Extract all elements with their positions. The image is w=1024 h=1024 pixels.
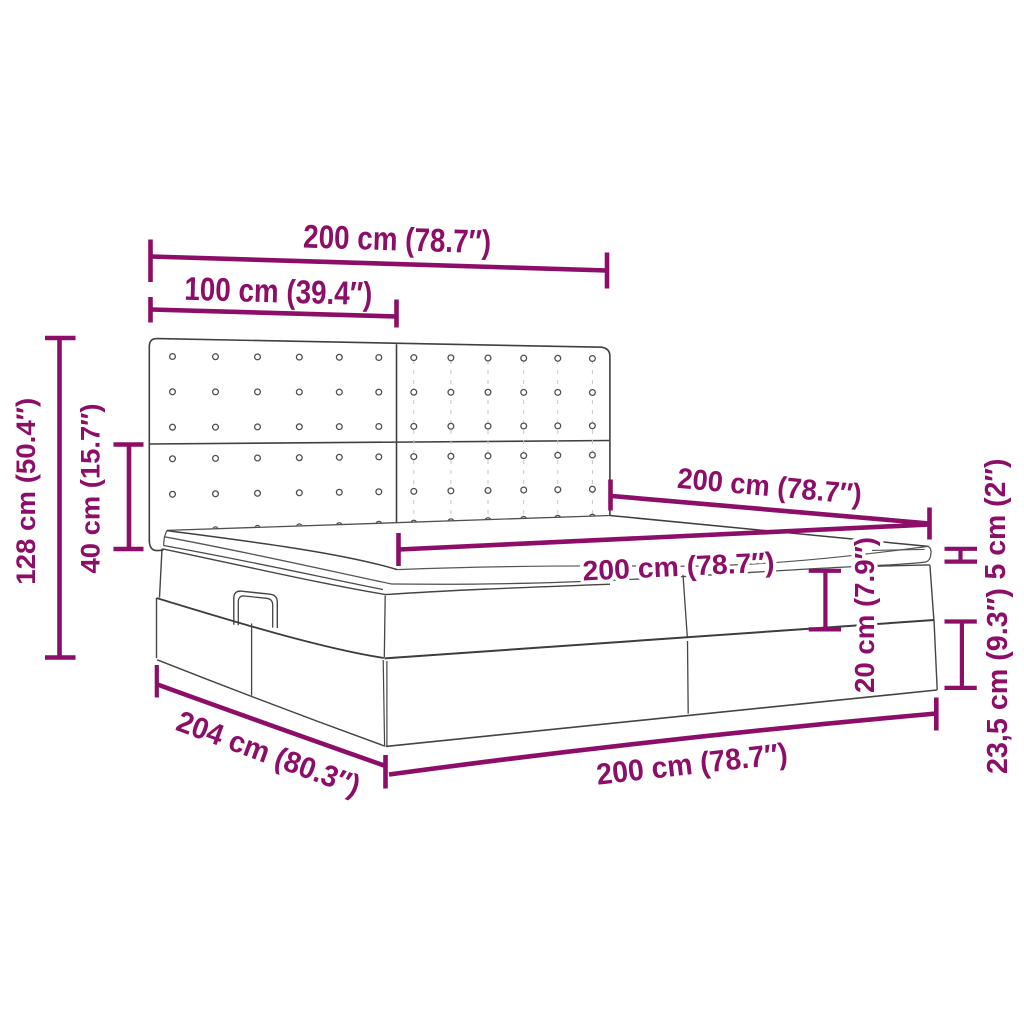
svg-text:200 cm (78.7″): 200 cm (78.7″) — [303, 218, 492, 261]
svg-text:23,5 cm (9.3″): 23,5 cm (9.3″) — [982, 588, 1014, 774]
svg-text:40 cm (15.7″): 40 cm (15.7″) — [76, 404, 106, 574]
svg-text:5 cm (2″): 5 cm (2″) — [980, 459, 1012, 580]
svg-text:100 cm (39.4″): 100 cm (39.4″) — [184, 270, 373, 312]
svg-text:20 cm (7.9″): 20 cm (7.9″) — [849, 537, 880, 693]
svg-text:128 cm (50.4″): 128 cm (50.4″) — [11, 398, 41, 585]
